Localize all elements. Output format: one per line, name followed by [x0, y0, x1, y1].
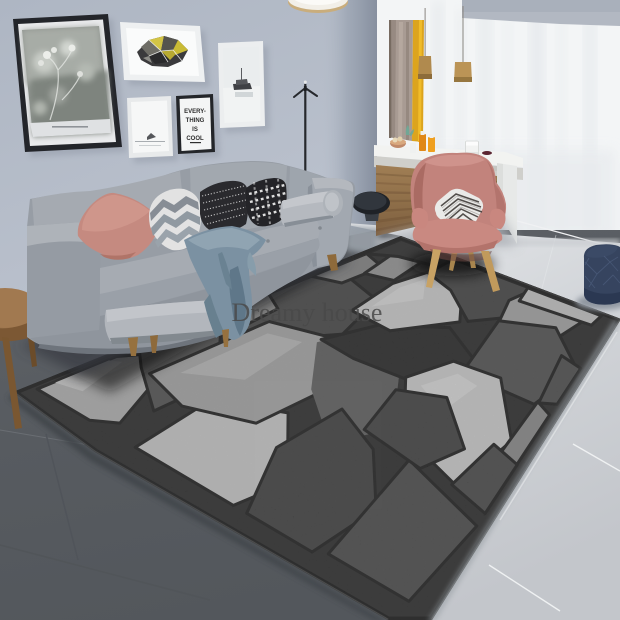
- svg-text:THING: THING: [186, 118, 205, 124]
- svg-text:EVERY-: EVERY-: [184, 109, 206, 115]
- svg-text:IS: IS: [192, 127, 198, 133]
- svg-text:COOL: COOL: [186, 136, 204, 142]
- svg-text:Dreamy house: Dreamy house: [232, 298, 383, 327]
